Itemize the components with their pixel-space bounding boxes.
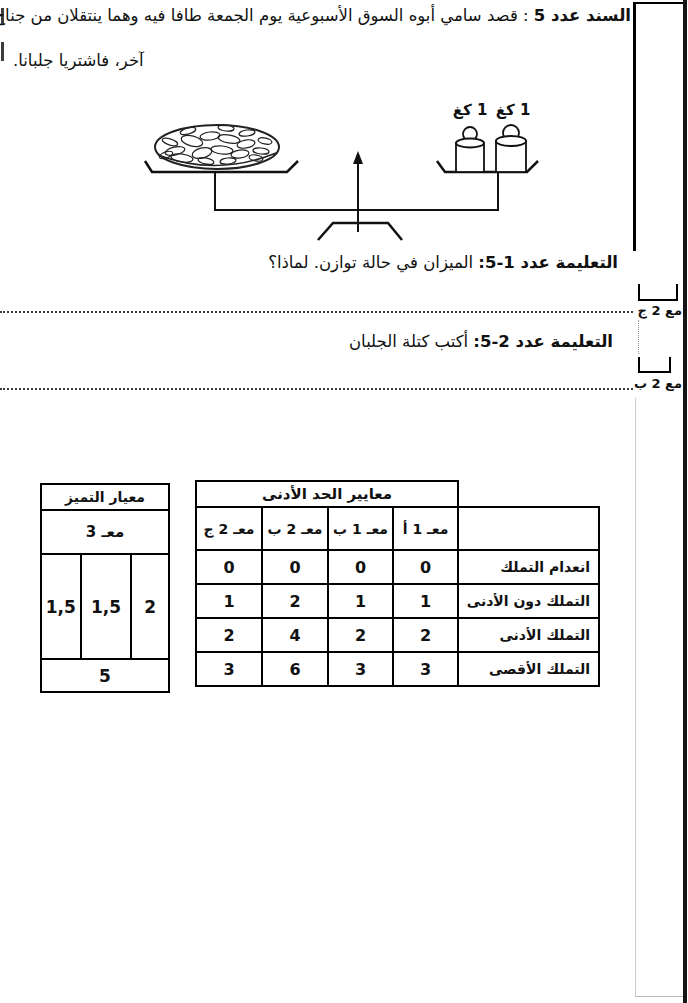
- excellence-total: 5: [41, 659, 169, 692]
- margin-mark-label-1: مع 2 ج: [630, 303, 682, 318]
- cell-value: 0: [393, 550, 458, 584]
- minimum-criteria-table: معايير الحد الأدنى معـ 1 أ معـ 1 ب معـ 2…: [195, 480, 600, 687]
- excellence-value: 1,5: [81, 554, 132, 659]
- source-paragraph-line1: السند عدد 5 : قصد سامي أبوه السوق الأسبو…: [0, 4, 631, 28]
- cell-value: 1: [196, 584, 262, 618]
- column-header: معـ 1 أ: [393, 507, 458, 550]
- cell-value: 0: [262, 550, 328, 584]
- excellence-value: 1,5: [41, 554, 81, 659]
- minimum-table-title: معايير الحد الأدنى: [196, 481, 458, 507]
- answer-dotted-line-1: [0, 302, 633, 313]
- column-header: معـ 1 ب: [328, 507, 393, 550]
- answer-dotted-line-2: [0, 379, 633, 390]
- row-label: انعدام التملك: [458, 550, 599, 584]
- table-row: التملك دون الأدنى 1 1 2 1: [196, 584, 599, 618]
- margin-dotted-divider: [638, 320, 639, 354]
- row-label: التملك الأدنى: [458, 618, 599, 652]
- left-pan-icon: [145, 161, 298, 172]
- cell-value: 0: [196, 550, 262, 584]
- weight-icon: [496, 125, 526, 172]
- score-bracket-1: [638, 284, 678, 301]
- cell-value: 3: [196, 652, 262, 686]
- margin-faint-bottom-line: [635, 996, 683, 997]
- weight-icon: [456, 127, 484, 172]
- score-bracket-2: [638, 357, 671, 373]
- cell-value: 3: [393, 652, 458, 686]
- instruction-2-label: التعليمة عدد 2-5:: [473, 332, 613, 351]
- excellence-table-title: معيار التميز: [41, 484, 169, 510]
- cell-value: 2: [196, 618, 262, 652]
- worksheet-page: السند عدد 5 : قصد سامي أبوه السوق الأسبو…: [0, 0, 688, 1003]
- weight-mass-label: 1 كغ: [450, 101, 490, 119]
- source-text: قصد سامي أبوه السوق الأسبوعية يوم الجمعة…: [0, 6, 518, 25]
- source-label: السند عدد 5: [534, 6, 631, 25]
- margin-faint-line: [635, 398, 636, 996]
- source-paragraph-line2: آخر، فاشتريا جلبانا.: [13, 49, 144, 73]
- instruction-2-text: أكتب كتلة الجلبان: [349, 332, 473, 351]
- cell-value: 3: [328, 652, 393, 686]
- weight-mass-label: 1 كغ: [493, 101, 533, 119]
- peas-plate-icon: [155, 124, 279, 169]
- page-edge-line: [683, 0, 687, 1003]
- instruction-1-text: الميزان في حالة توازن. لماذا؟: [268, 253, 478, 272]
- cell-value: 1: [328, 584, 393, 618]
- excellence-table: معيار التميز معـ 3 2 1,5 1,5 5: [40, 483, 170, 693]
- instruction-1: التعليمة عدد 1-5: الميزان في حالة توازن.…: [268, 251, 618, 275]
- cell-value: 6: [262, 652, 328, 686]
- row-label-header-cell: [458, 507, 599, 550]
- row-label: التملك الأقصى: [458, 652, 599, 686]
- fulcrum-icon: [318, 223, 402, 240]
- column-header: معـ 2 ب: [262, 507, 328, 550]
- excellence-value: 2: [131, 554, 169, 659]
- margin-mark-label-2: مع 2 ب: [628, 376, 682, 391]
- cell-value: 1: [393, 584, 458, 618]
- table-row: انعدام التملك 0 0 0 0: [196, 550, 599, 584]
- table-row: التملك الأقصى 3 3 6 3: [196, 652, 599, 686]
- cell-value: 4: [262, 618, 328, 652]
- table-notch-cell: [458, 481, 599, 507]
- table-row: التملك الأدنى 2 2 4 2: [196, 618, 599, 652]
- margin-score-box: [633, 2, 683, 251]
- cell-value: 0: [328, 550, 393, 584]
- cell-value: 2: [393, 618, 458, 652]
- excellence-criterion-label: معـ 3: [41, 510, 169, 554]
- row-label: التملك دون الأدنى: [458, 584, 599, 618]
- column-header: معـ 2 ج: [196, 507, 262, 550]
- cell-value: 2: [262, 584, 328, 618]
- balance-scale-figure: [130, 95, 575, 255]
- instruction-2: التعليمة عدد 2-5: أكتب كتلة الجلبان: [349, 330, 613, 354]
- cell-value: 2: [328, 618, 393, 652]
- instruction-1-label: التعليمة عدد 1-5:: [478, 253, 618, 272]
- balance-beam: [215, 172, 498, 210]
- scan-edge-tick: [1, 42, 4, 61]
- pointer-arrow-icon: [353, 151, 363, 232]
- source-separator: :: [518, 6, 534, 25]
